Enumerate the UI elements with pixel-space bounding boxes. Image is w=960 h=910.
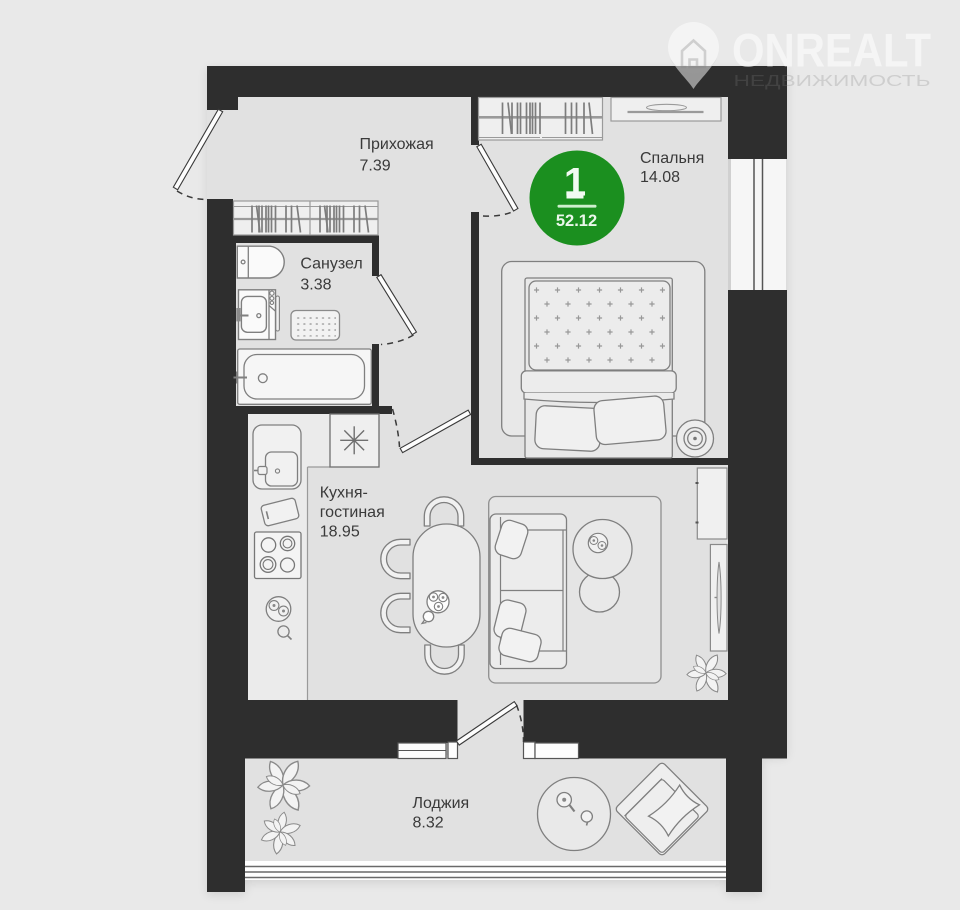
svg-text:ONREALT: ONREALT bbox=[732, 24, 931, 77]
svg-text:гостиная: гостиная bbox=[320, 504, 385, 521]
svg-text:Санузел: Санузел bbox=[300, 256, 362, 273]
svg-text:7.39: 7.39 bbox=[360, 158, 391, 175]
svg-text:Лоджия: Лоджия bbox=[413, 795, 470, 812]
svg-text:3.38: 3.38 bbox=[300, 277, 331, 294]
svg-text:Кухня-: Кухня- bbox=[320, 484, 368, 501]
svg-text:НЕДВИЖИМОСТЬ: НЕДВИЖИМОСТЬ bbox=[734, 73, 931, 90]
svg-text:18.95: 18.95 bbox=[320, 524, 360, 541]
svg-text:Спальня: Спальня bbox=[640, 150, 704, 167]
svg-text:Прихожая: Прихожая bbox=[360, 136, 434, 153]
svg-text:14.08: 14.08 bbox=[640, 169, 680, 186]
svg-text:8.32: 8.32 bbox=[413, 815, 444, 832]
svg-text:52.12: 52.12 bbox=[556, 212, 597, 230]
